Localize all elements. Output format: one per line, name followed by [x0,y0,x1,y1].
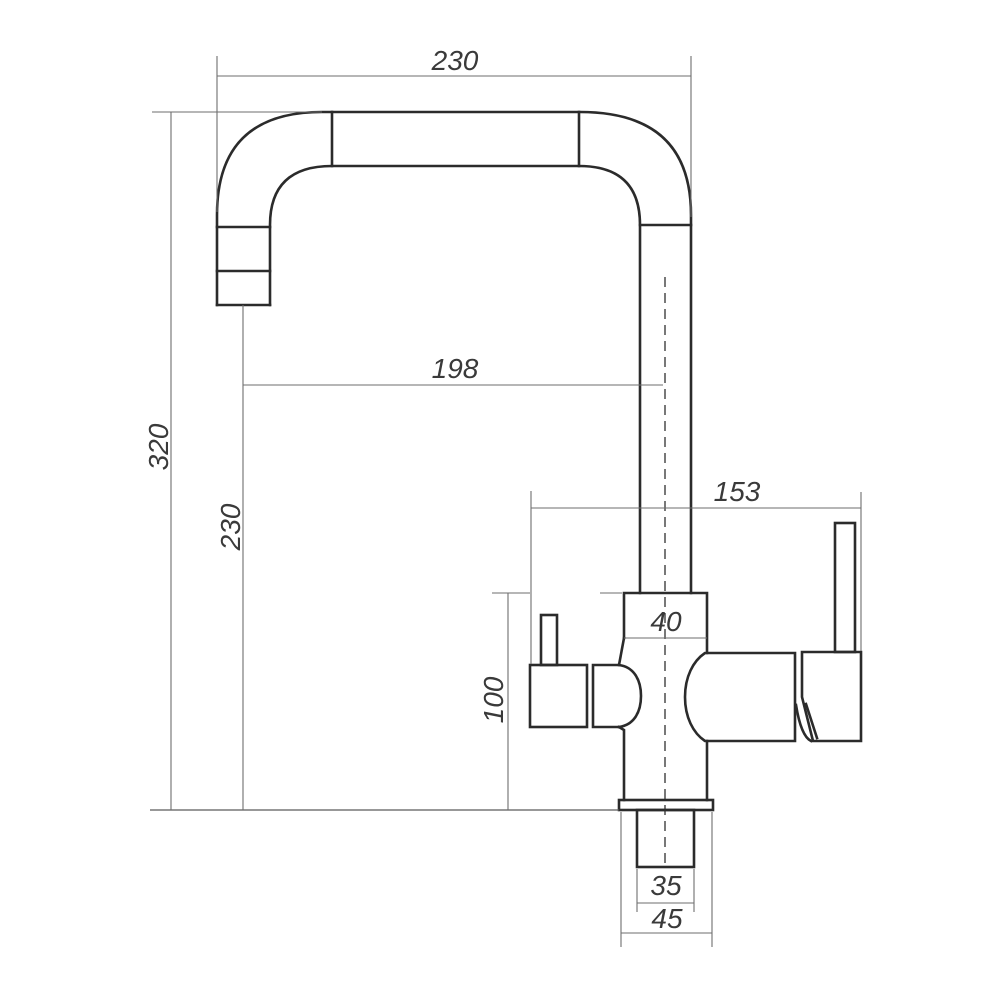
nozzle-aerator [217,227,270,305]
right-handle-stick [835,523,855,652]
label-shank-width: 35 [650,870,682,901]
right-handle [796,523,861,741]
label-base-width: 45 [651,903,683,934]
drawing-canvas: 230 320 230 198 153 40 100 35 45 [0,0,1000,1000]
left-handle-body [530,665,587,727]
dim-total-height [152,112,322,810]
left-handle [530,615,587,727]
left-handle-stick [541,615,557,665]
label-total-height: 320 [143,423,174,470]
label-body-diameter: 40 [650,606,682,637]
dim-spout-top-width [217,56,691,217]
right-handle-base [802,652,861,741]
base-flange [619,800,713,810]
right-valve-body [685,653,795,741]
body-left-chamfer [619,638,624,665]
base-mount [619,800,713,867]
faucet-technical-drawing: 230 320 230 198 153 40 100 35 45 [0,0,1000,1000]
left-valve-cartridge [593,665,619,727]
faucet-outline [217,112,861,867]
left-valve-cartridge-cap [619,665,641,727]
label-handle-span: 153 [714,476,761,507]
label-spout-reach: 198 [432,353,479,384]
label-spout-top-width: 230 [431,45,479,76]
label-spout-drop-height: 230 [215,503,246,551]
label-body-height: 100 [478,676,509,723]
body-column-left-edge [619,727,624,800]
